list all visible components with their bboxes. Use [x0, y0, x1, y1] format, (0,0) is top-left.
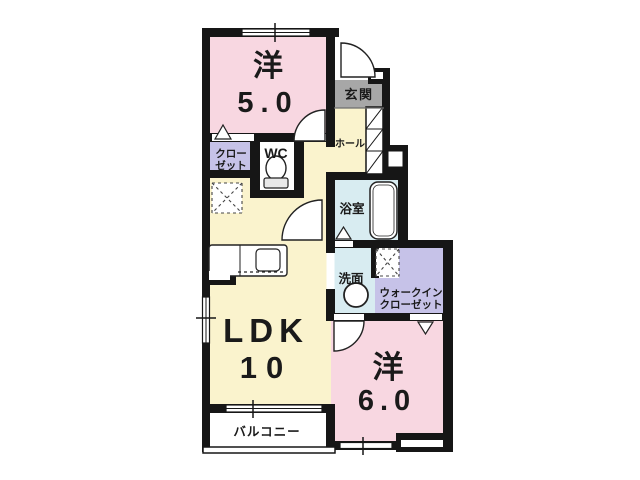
wall-bath-right [398, 173, 408, 246]
room5-label: 洋 [253, 50, 283, 83]
window-room6-corner-slot [401, 440, 443, 447]
bathtub [370, 182, 397, 239]
washroom-label: 洗面 [338, 271, 364, 286]
refrigerator-space [212, 183, 242, 213]
closet-label-line1: クロー [215, 148, 247, 160]
washing-machine-space [376, 249, 399, 276]
room6-door-gap [334, 314, 364, 320]
kitchen-stub-slot [209, 271, 230, 280]
wic-label-line2: クローゼット [380, 298, 443, 311]
wall-left [202, 28, 210, 452]
ldk-area: 10 [240, 350, 292, 385]
shoe-cabinet [366, 107, 383, 174]
wall-wic-top [399, 240, 449, 248]
bathroom-label: 浴室 [339, 201, 365, 216]
entrance-door-arc [341, 43, 375, 77]
hall-label: ホール [335, 138, 365, 150]
entrance-label: 玄関 [344, 87, 373, 102]
washroom-door-gap [327, 253, 335, 289]
ldk-label: LDK [223, 312, 309, 349]
wic-opening-gap [410, 314, 442, 320]
wall-wc-right [294, 142, 304, 198]
closet-label-line2: ゼット [215, 159, 247, 172]
pipe-space-box [388, 151, 403, 167]
room5-area: 5.0 [237, 87, 298, 119]
wall-right-outer [443, 240, 453, 440]
balcony-label: バルコニー [233, 425, 300, 439]
kitchen-counter [209, 245, 287, 280]
wall-room5-right [326, 28, 335, 147]
wic-label-line1: ウォークイン [380, 287, 443, 299]
wc-label: WC [264, 145, 287, 161]
room6-area: 6.0 [358, 385, 416, 417]
washbasin-sink [344, 283, 368, 307]
floor-plan-canvas: 洋 5.0 LDK 10 洋 6.0 玄関 ホール クロー ゼット WC 浴室 … [0, 0, 640, 480]
wall-wc-bottom [250, 190, 304, 198]
room6-label: 洋 [373, 350, 404, 385]
floor-plan-page: 洋 5.0 LDK 10 洋 6.0 玄関 ホール クロー ゼット WC 浴室 … [0, 0, 640, 480]
kitchen-sink [256, 249, 280, 271]
balcony-railing [203, 447, 335, 453]
bath-door-gap [335, 241, 353, 247]
